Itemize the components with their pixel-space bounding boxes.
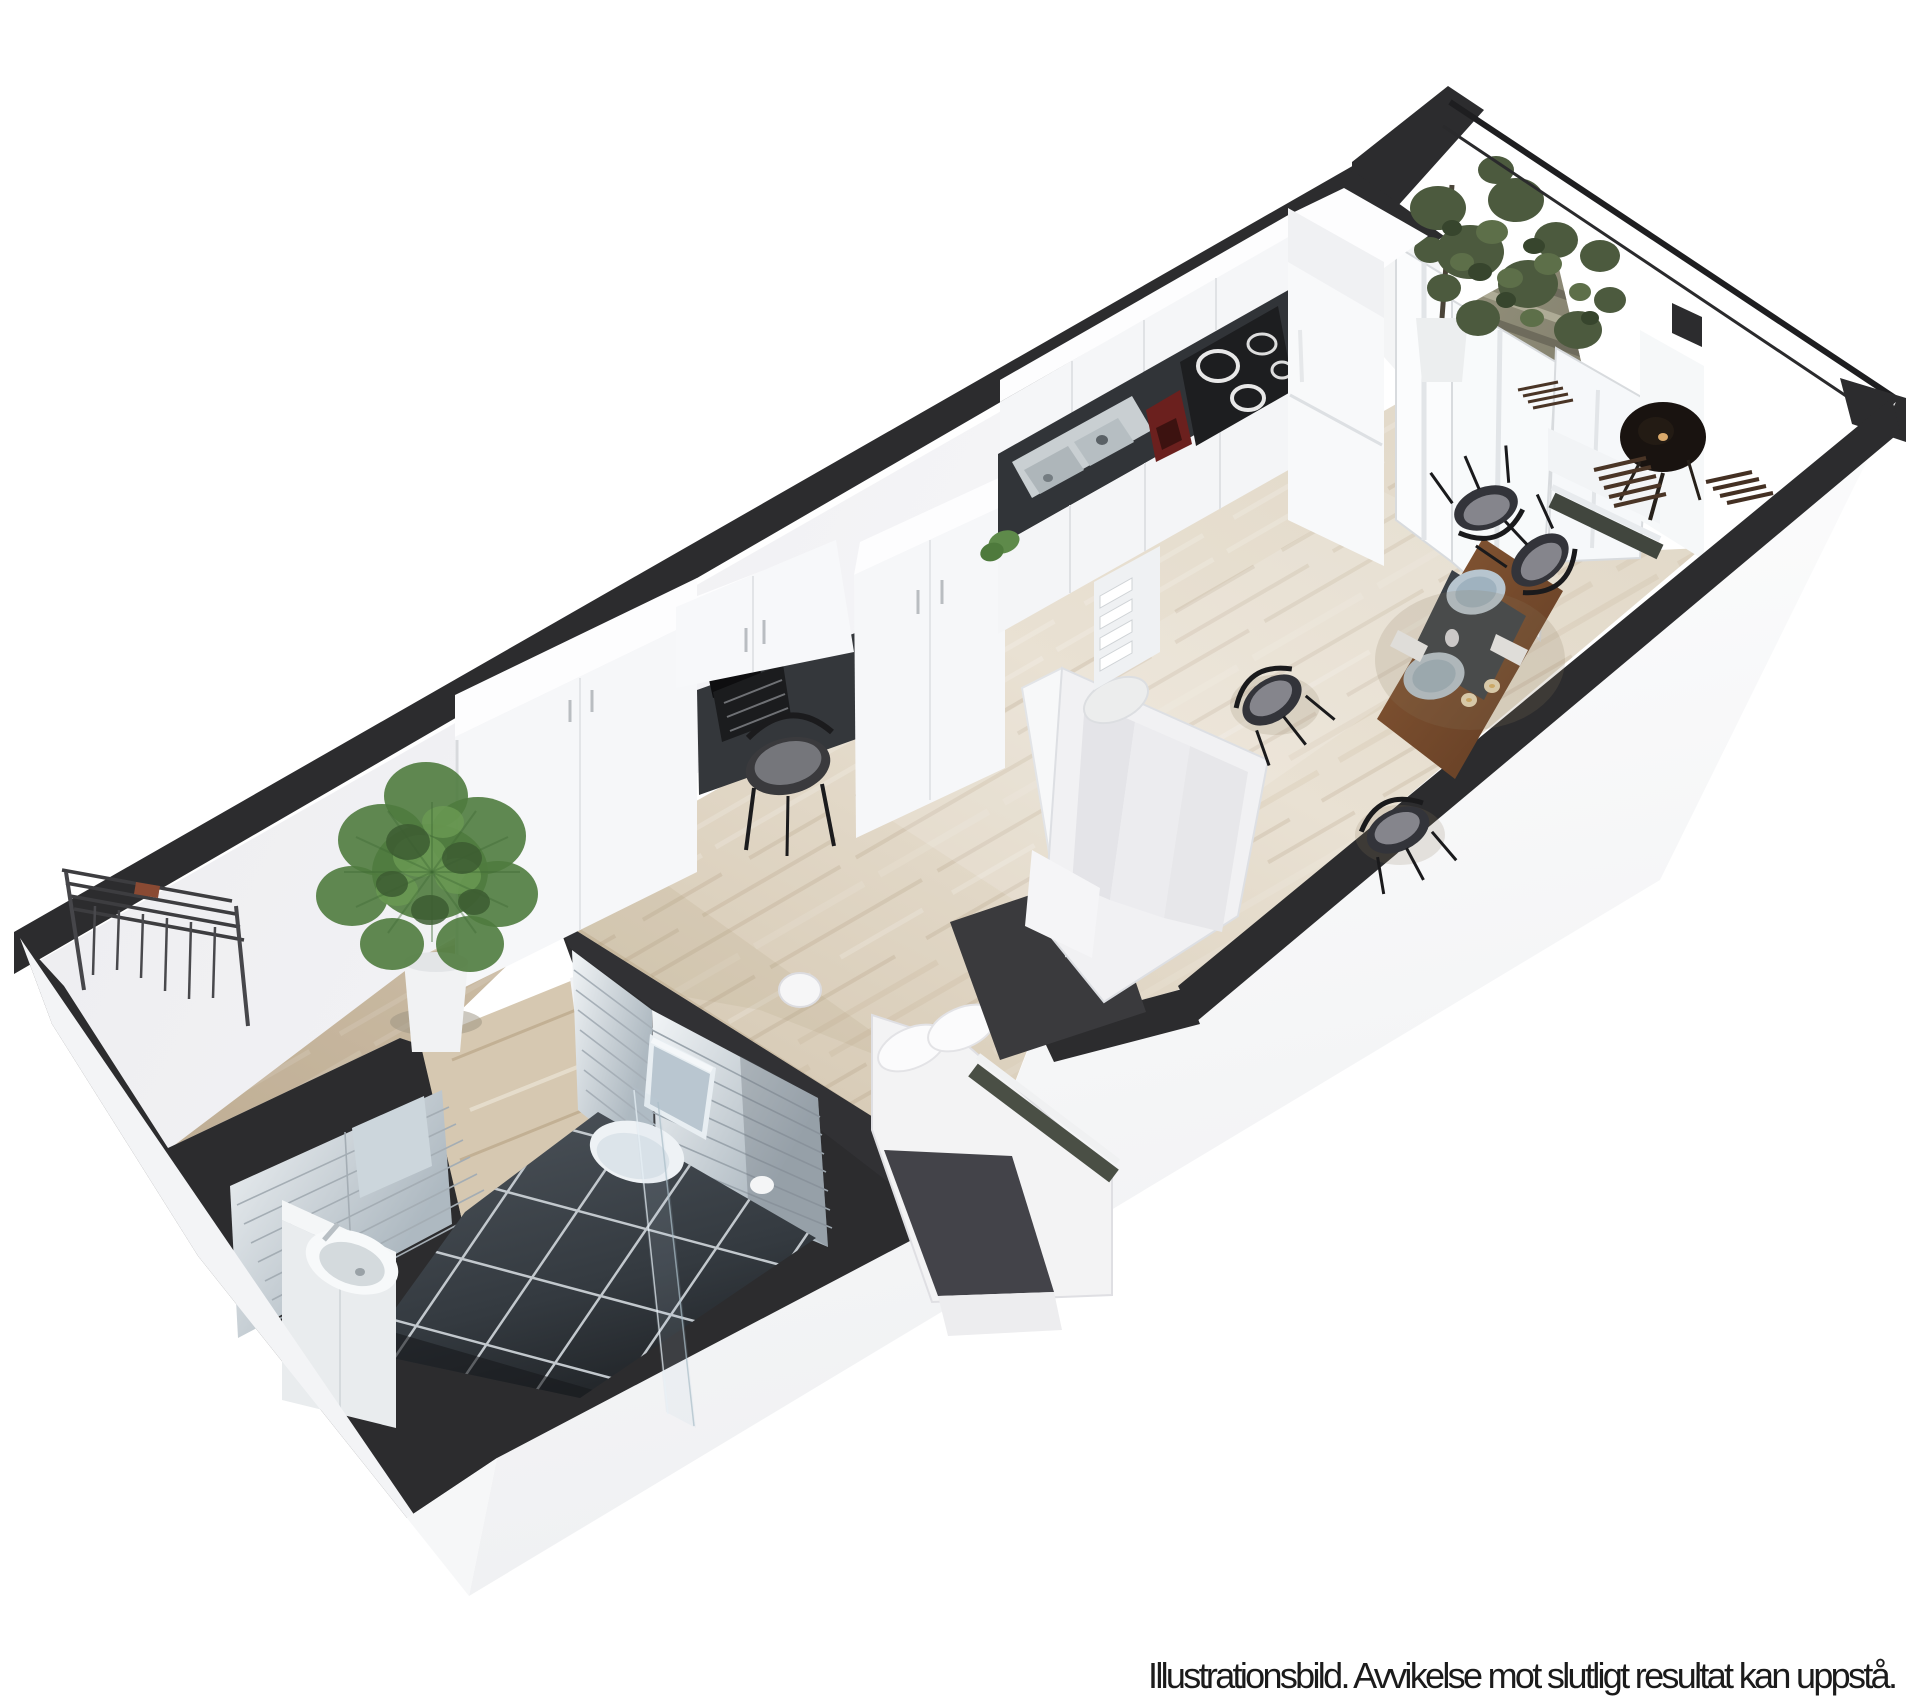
svg-text:Illustrationsbild. Avvikelse m: Illustrationsbild. Avvikelse mot slutlig… [1148, 1655, 1898, 1696]
